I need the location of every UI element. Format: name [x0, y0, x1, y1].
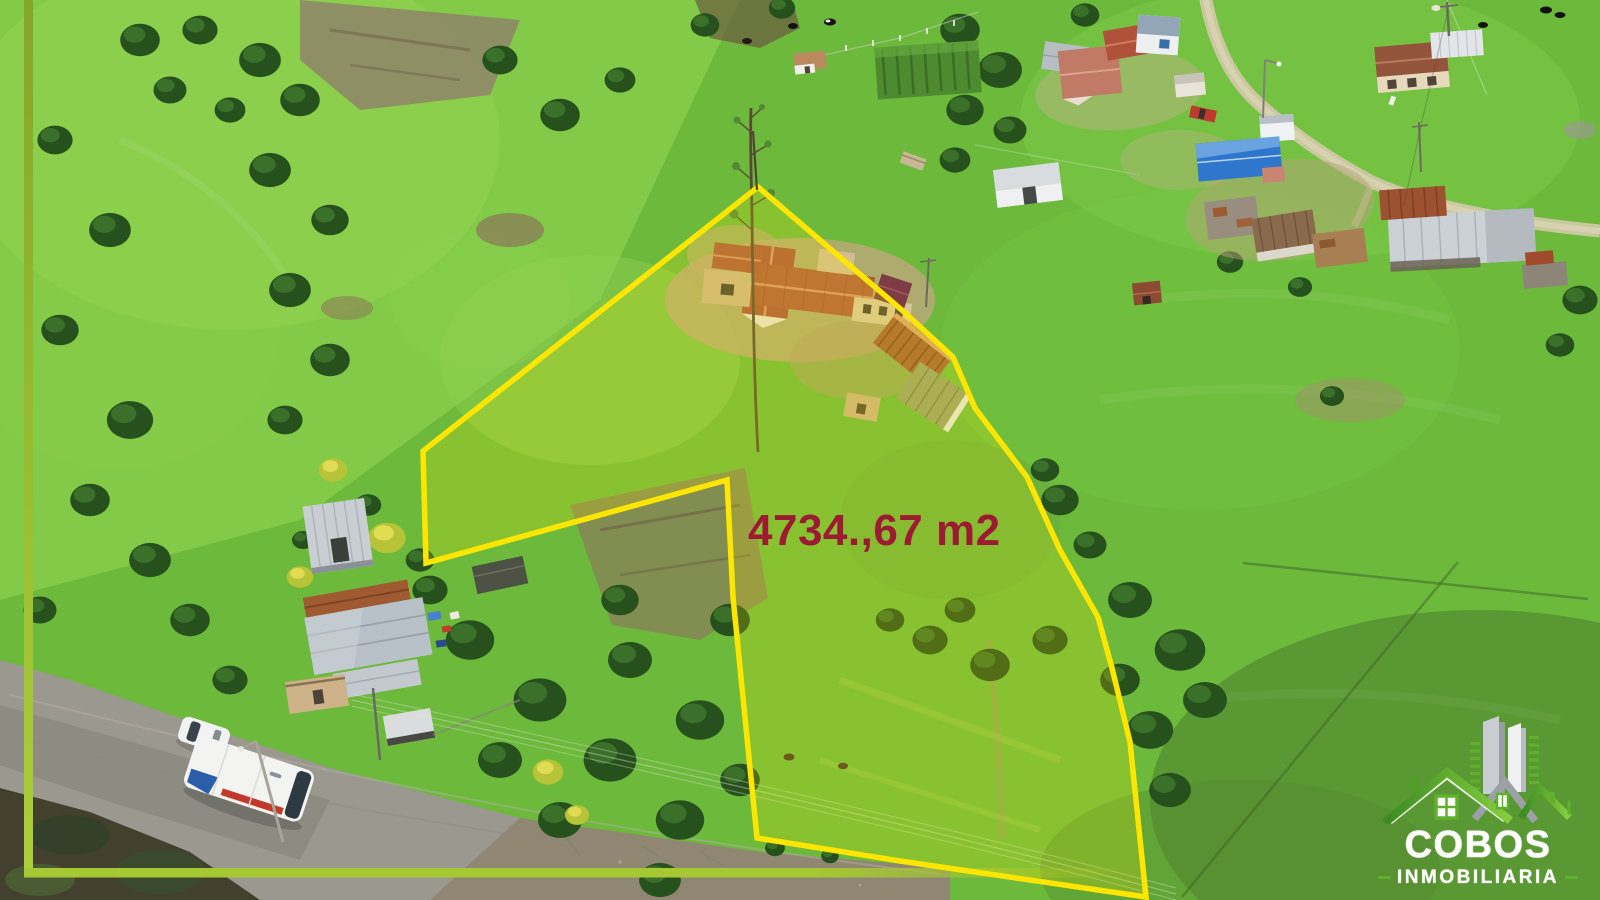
village-shed-white [993, 162, 1063, 208]
logo-dash-right-icon [1565, 876, 1578, 879]
area-label: 4734.,67 m2 [748, 509, 1001, 553]
frame-left-line [24, 0, 33, 877]
pasture-shed [1132, 281, 1162, 306]
aerial-photo [0, 0, 1600, 900]
logo-subtitle: INMOBILIARIA [1397, 868, 1559, 887]
brand-logo: COBOS INMOBILIARIA [1378, 712, 1578, 884]
logo-houses-icon [1378, 712, 1578, 824]
logo-company-name: COBOS [1378, 826, 1578, 864]
tall-grass-patch [874, 40, 981, 99]
village-house-white [1136, 15, 1181, 56]
logo-subtitle-row: INMOBILIARIA [1378, 868, 1578, 887]
logo-dash-left-icon [1378, 876, 1391, 879]
real-estate-listing-image: 4734.,67 m2 [0, 0, 1600, 900]
